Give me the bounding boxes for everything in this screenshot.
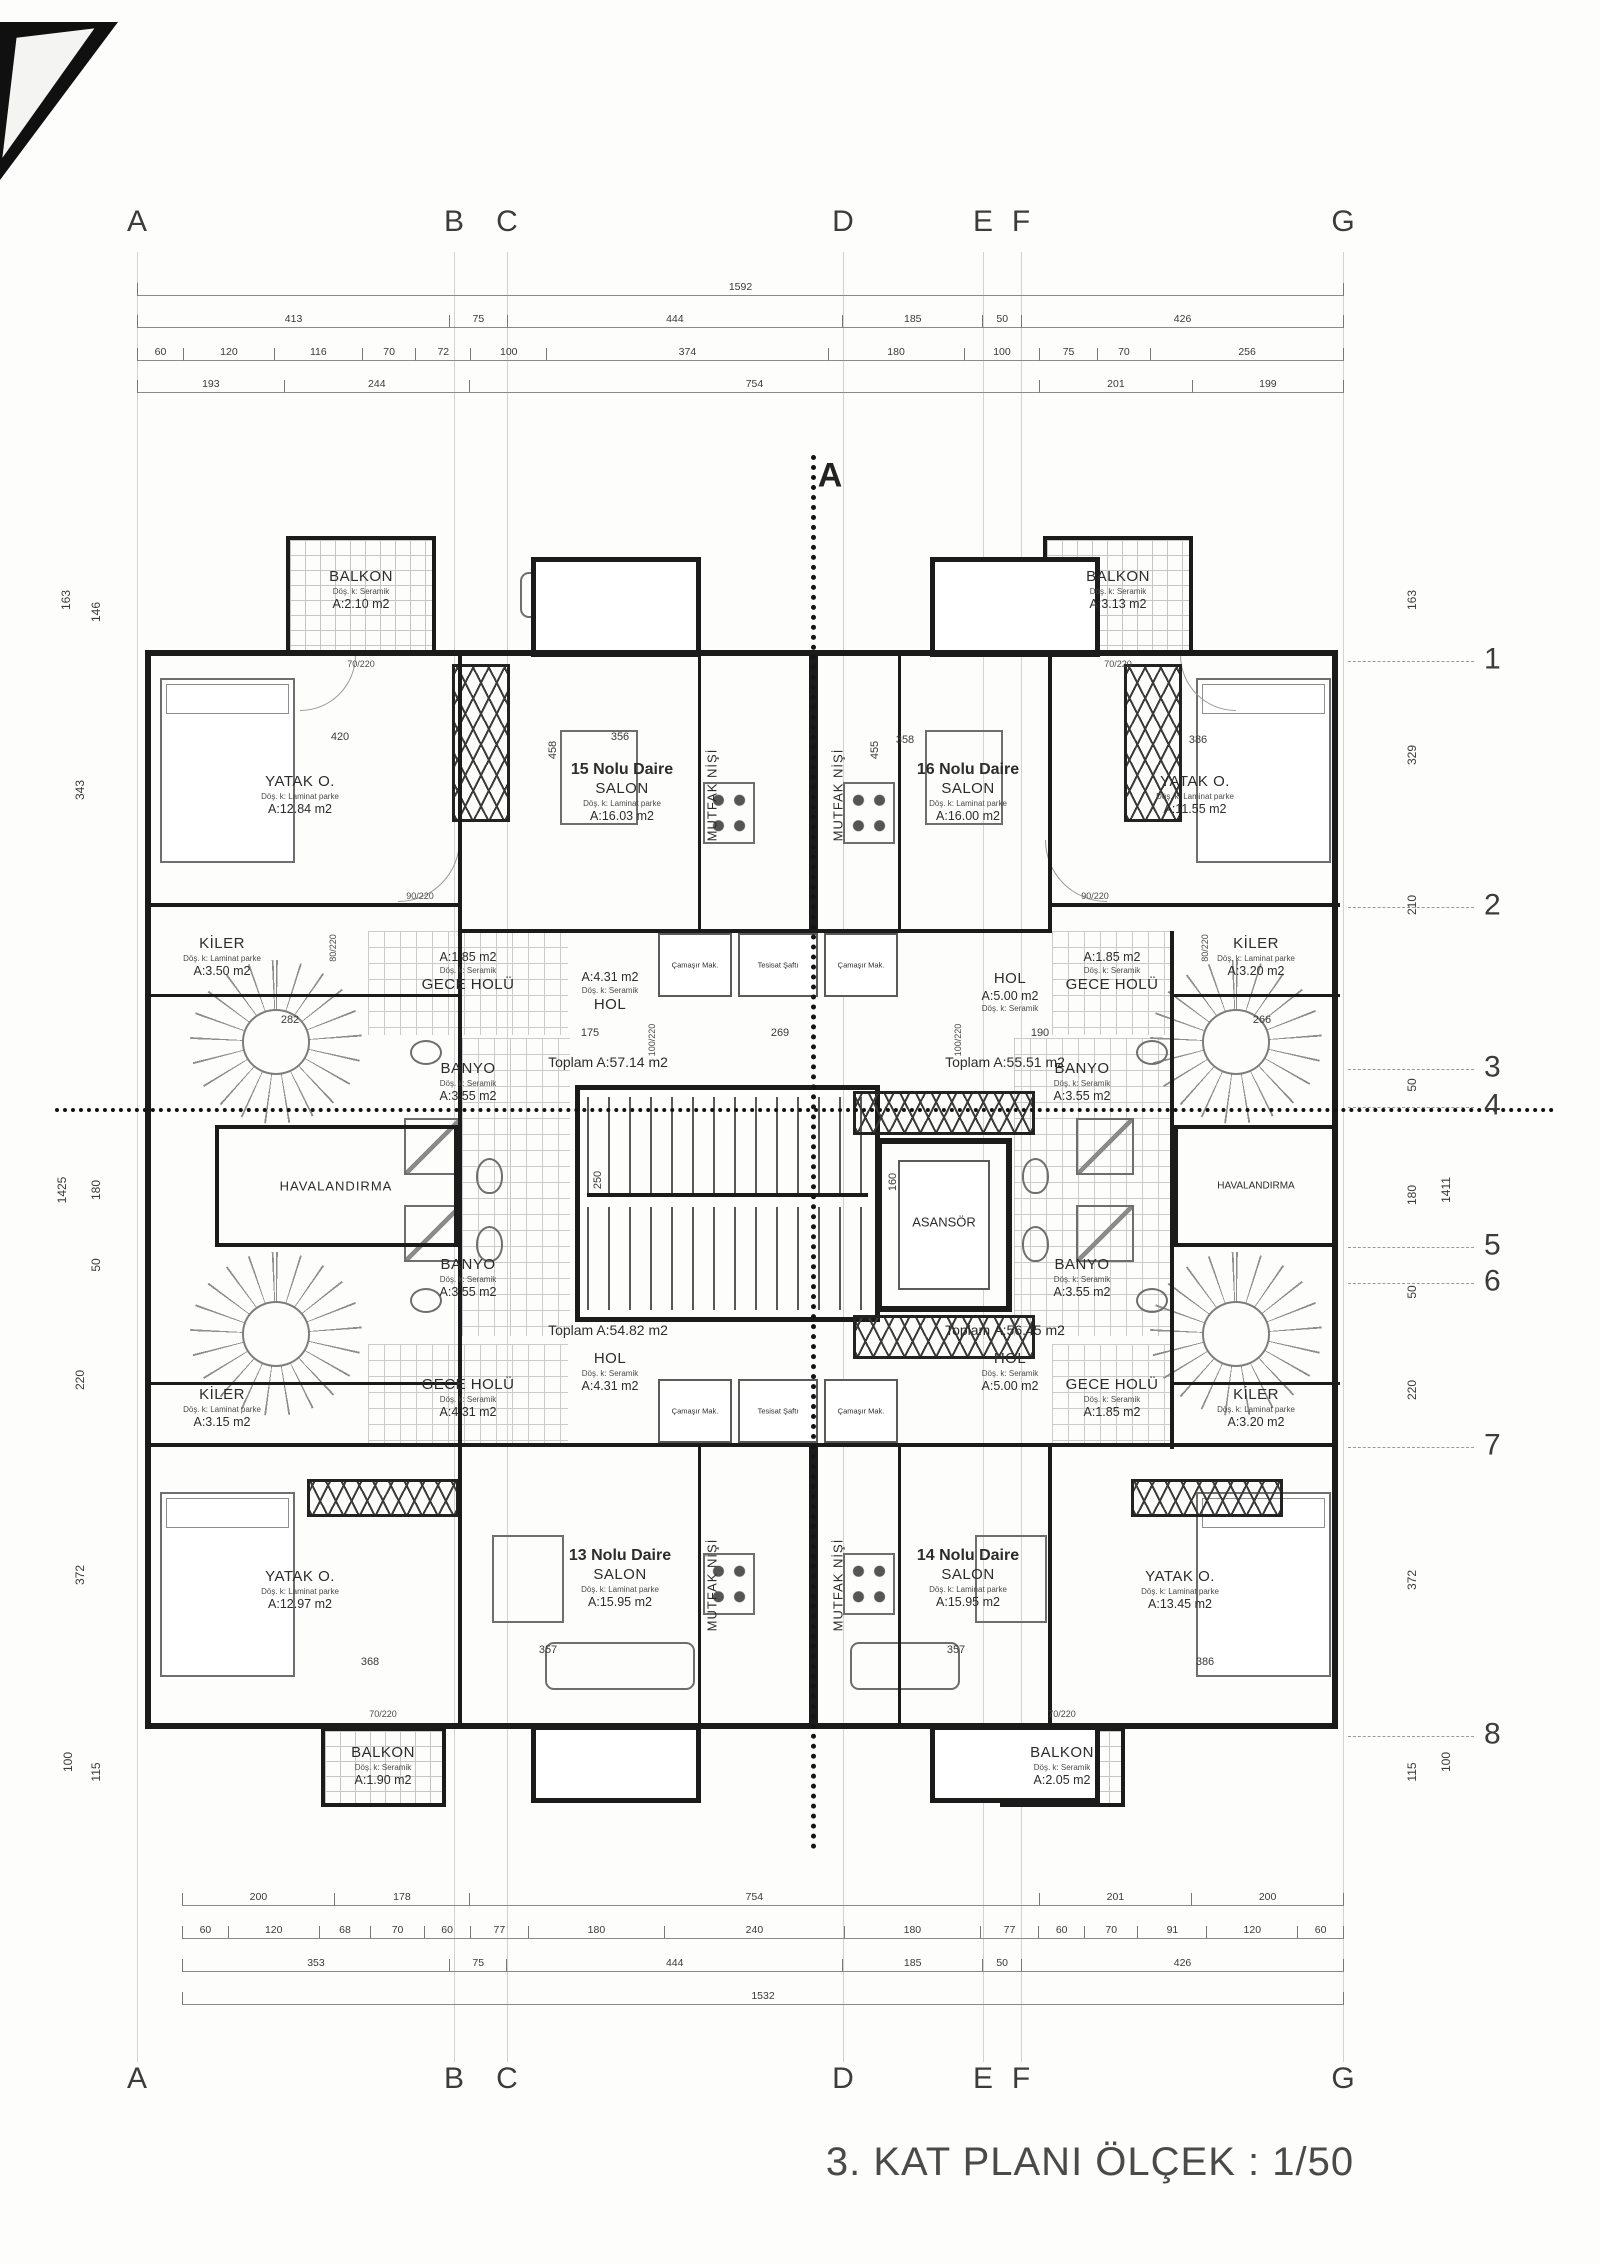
room-label-area: A:5.00 m2 <box>982 989 1039 1005</box>
dim-value: 185 <box>904 1957 922 1969</box>
label-mutfak-nisi-14: MUTFAK NİŞİ <box>831 1539 846 1632</box>
label-mutfak-nisi-16: MUTFAK NİŞİ <box>831 749 846 842</box>
dim-value: 426 <box>1174 1957 1192 1969</box>
grid-letter-top-e: E <box>973 205 993 239</box>
dim-segment: 60 <box>425 1926 471 1939</box>
room-label-unit: 16 Nolu Daire <box>917 760 1019 780</box>
room-label-area: A:12.97 m2 <box>261 1597 339 1613</box>
inner-dim-282: 282 <box>281 1014 299 1026</box>
grid-letter-top-f: F <box>1012 205 1030 239</box>
dim-right-115: 115 <box>1405 1762 1419 1781</box>
label-camasir-bottom-right: Çamaşır Mak. <box>838 1407 885 1416</box>
room-yatak-15: YATAK O.Döş. k: Laminat parkeA:12.84 m2 <box>261 773 339 817</box>
dim-segment: 60 <box>138 348 184 361</box>
room-yatak-14: YATAK O.Döş. k: Laminat parkeA:13.45 m2 <box>1141 1568 1219 1612</box>
dim-left-1425: 1425 <box>55 1177 69 1204</box>
row-number-7: 7 <box>1484 1428 1501 1462</box>
dim-left-343: 343 <box>73 780 87 800</box>
grid-letter-top-d: D <box>832 205 854 239</box>
wall-kiler15 <box>145 994 460 997</box>
room-label-area: A:4.31 m2 <box>582 1379 639 1395</box>
room-label-name: YATAK O. <box>1156 773 1234 792</box>
stairwell <box>575 1085 880 1322</box>
room-kiler-15: KİLERDöş. k: Laminat parkeA:3.50 m2 <box>183 935 261 979</box>
room-label-note: Döş. k: Seramik <box>1054 1275 1111 1285</box>
dim-right-372: 372 <box>1405 1570 1419 1590</box>
dim-value: 200 <box>250 1891 268 1903</box>
bay-window-salon-16 <box>930 557 1100 657</box>
dim-left-220: 220 <box>73 1370 87 1390</box>
inner-dim-455: 455 <box>869 741 881 759</box>
room-label-name: YATAK O. <box>1141 1568 1219 1587</box>
wall-yatak13-salon13 <box>458 1447 462 1729</box>
dim-value: 60 <box>441 1924 453 1936</box>
dim-value: 60 <box>1315 1924 1327 1936</box>
dim-segment: 426 <box>1022 315 1344 328</box>
room-label-name: SALON <box>917 1566 1019 1585</box>
row-number-3: 3 <box>1484 1050 1501 1084</box>
room-label-area: A:3.20 m2 <box>1217 1415 1295 1431</box>
dim-segment: 444 <box>508 315 843 328</box>
grid-letter-bottom-e: E <box>973 2062 993 2096</box>
dim-value: 60 <box>200 1924 212 1936</box>
room-label-note: Döş. k: Seramik <box>1030 1763 1094 1773</box>
dim-segment: 77 <box>471 1926 530 1939</box>
shaft-hatch-above-elevator <box>853 1091 1035 1135</box>
room-label-note: Döş. k: Seramik <box>440 1275 497 1285</box>
dim-segment: 200 <box>1192 1893 1344 1906</box>
room-label-note: Döş. k: Laminat parke <box>1141 1587 1219 1597</box>
room-label-area: A:16.03 m2 <box>571 809 673 825</box>
room-label-area: A:3.50 m2 <box>183 964 261 980</box>
room-label-name: HOL <box>582 1350 639 1369</box>
section-line-vertical <box>811 455 816 1850</box>
room-kiler-14: KİLERDöş. k: Laminat parkeA:3.20 m2 <box>1217 1386 1295 1430</box>
room-salon-16: 16 Nolu DaireSALONDöş. k: Laminat parkeA… <box>917 760 1019 824</box>
room-banyo-15: BANYODöş. k: SeramikA:3.55 m2 <box>440 1060 497 1104</box>
dim-segment: 60 <box>1298 1926 1344 1939</box>
dim-segment: 68 <box>320 1926 372 1939</box>
dim-value: 60 <box>155 346 167 358</box>
dim-value: 444 <box>666 313 684 325</box>
dim-value: 201 <box>1107 378 1125 390</box>
room-label-area: A:3.15 m2 <box>183 1415 261 1431</box>
dim-value: 180 <box>904 1924 922 1936</box>
inner-dim-420: 420 <box>331 731 349 743</box>
room-balkon-top-left: BALKONDöş. k: SeramikA:2.10 m2 <box>329 568 393 612</box>
dim-value: 77 <box>1004 1924 1016 1936</box>
dim-left-100: 100 <box>61 1752 75 1772</box>
grid-letter-bottom-c: C <box>496 2062 518 2096</box>
dim-right-100: 100 <box>1439 1752 1453 1772</box>
room-label-area: A:15.95 m2 <box>569 1595 671 1611</box>
label-mutfak-nisi-15: MUTFAK NİŞİ <box>705 749 720 842</box>
room-label-note: Döş. k: Seramik <box>329 587 393 597</box>
wall-kitchen16-right <box>898 650 901 933</box>
room-kiler-13: KİLERDöş. k: Laminat parkeA:3.15 m2 <box>183 1386 261 1430</box>
dim-left-372: 372 <box>73 1565 87 1585</box>
dim-right-329: 329 <box>1405 745 1419 765</box>
dim-segment: 185 <box>843 1959 983 1972</box>
dim-value: 100 <box>500 346 518 358</box>
dim-segment: 193 <box>138 380 285 393</box>
wall-core-left <box>458 931 462 1449</box>
inner-dim-175: 175 <box>581 1027 599 1039</box>
dim-value: 754 <box>746 378 764 390</box>
label-toplam-13: Toplam A:54.82 m2 <box>548 1322 668 1338</box>
room-label-name: HOL <box>982 1350 1039 1369</box>
dim-segment: 754 <box>470 380 1040 393</box>
dim-chain-bottom-rooms: 200178754201200 <box>182 1893 1344 1906</box>
door-size-label: 100/220 <box>953 1024 963 1057</box>
dim-chain-bottom-detail: 60120687060771802401807760709112060 <box>182 1926 1344 1939</box>
plan-title: 3. KAT PLANI ÖLÇEK : 1/50 <box>800 2140 1380 2185</box>
dim-value: 50 <box>996 1957 1008 1969</box>
room-hol-13: HOLDöş. k: SeramikA:4.31 m2 <box>582 1350 639 1394</box>
bay-window-salon-15 <box>531 557 701 657</box>
dim-segment: 374 <box>547 348 828 361</box>
wall-kiler14 <box>1174 1382 1340 1385</box>
dim-segment: 60 <box>1039 1926 1085 1939</box>
dim-segment: 72 <box>416 348 471 361</box>
shaft-hatch-bottom-left <box>307 1479 459 1517</box>
label-asansor: ASANSÖR <box>912 1215 976 1230</box>
dim-value: 70 <box>383 346 395 358</box>
room-label-name: GECE HOLÜ <box>1066 1376 1159 1395</box>
dim-segment: 244 <box>285 380 470 393</box>
room-label-note: Döş. k: Laminat parke <box>917 1585 1019 1595</box>
grid-letter-top-b: B <box>444 205 464 239</box>
room-balkon-bottom-right: BALKONDöş. k: SeramikA:2.05 m2 <box>1030 1744 1094 1788</box>
room-label-note: Döş. k: Laminat parke <box>1217 954 1295 964</box>
row-number-1: 1 <box>1484 642 1501 676</box>
dim-right-210: 210 <box>1405 895 1419 915</box>
dim-segment: 201 <box>1040 380 1193 393</box>
room-salon-13: 13 Nolu DaireSALONDöş. k: Laminat parkeA… <box>569 1546 671 1610</box>
dim-value: 426 <box>1174 313 1192 325</box>
dim-segment: 426 <box>1022 1959 1344 1972</box>
room-label-name: GECE HOLÜ <box>1066 975 1159 994</box>
dim-segment: 754 <box>470 1893 1040 1906</box>
dim-segment: 60 <box>183 1926 229 1939</box>
wall-bottom-band-top <box>145 1443 1338 1447</box>
inner-dim-386-bottom: 386 <box>1196 1656 1214 1668</box>
dim-value: 256 <box>1238 346 1256 358</box>
room-label-note: Döş. k: Laminat parke <box>183 954 261 964</box>
room-label-area: A:15.95 m2 <box>917 1595 1019 1611</box>
room-label-area: A:13.45 m2 <box>1141 1597 1219 1613</box>
inner-dim-386-top: 386 <box>1189 734 1207 746</box>
dim-value: 1592 <box>729 281 752 293</box>
inner-dim-358: 358 <box>896 734 914 746</box>
section-marker: A <box>818 457 843 496</box>
dim-segment: 120 <box>1207 1926 1298 1939</box>
floor-plan-sheet: A B C D E F G A B C D E F G 1 2 3 4 5 6 … <box>0 0 1600 2264</box>
dim-segment: 70 <box>1098 348 1151 361</box>
room-gece-holu-13: GECE HOLÜDöş. k: SeramikA:4.31 m2 <box>422 1376 515 1420</box>
dim-right-220: 220 <box>1405 1380 1419 1400</box>
dim-left-163: 163 <box>59 590 73 610</box>
dim-segment: 50 <box>983 315 1022 328</box>
bay-window-salon-13 <box>531 1725 701 1803</box>
dim-value: 100 <box>993 346 1011 358</box>
inner-dim-269: 269 <box>771 1027 789 1039</box>
room-label-area: A:3.55 m2 <box>440 1285 497 1301</box>
dim-segment: 256 <box>1151 348 1344 361</box>
grid-letter-top-g: G <box>1331 205 1354 239</box>
room-label-note: Döş. k: Seramik <box>1066 965 1159 975</box>
inner-dim-368: 368 <box>361 1656 379 1668</box>
row-leader-7 <box>1348 1447 1474 1448</box>
row-leader-5 <box>1348 1247 1474 1248</box>
inner-dim-160: 160 <box>887 1173 899 1191</box>
label-toplam-16: Toplam A:55.51 m2 <box>945 1054 1065 1070</box>
room-label-name: BANYO <box>1054 1256 1111 1275</box>
wall-salon16-yatak16 <box>1048 650 1052 933</box>
room-label-note: Döş. k: Seramik <box>422 965 515 975</box>
dim-segment: 1532 <box>183 1992 1344 2005</box>
row-leader-1 <box>1348 661 1474 662</box>
room-salon-15: 15 Nolu DaireSALONDöş. k: Laminat parkeA… <box>571 760 673 824</box>
room-label-name: SALON <box>569 1566 671 1585</box>
room-label-name: GECE HOLÜ <box>422 975 515 994</box>
grid-letter-bottom-d: D <box>832 2062 854 2096</box>
dim-segment: 120 <box>184 348 275 361</box>
dim-value: 120 <box>265 1924 283 1936</box>
dim-value: 70 <box>1105 1924 1117 1936</box>
room-label-unit: 14 Nolu Daire <box>917 1546 1019 1566</box>
grid-line-A <box>137 252 138 2062</box>
dim-value: 200 <box>1259 1891 1277 1903</box>
room-label-note: Döş. k: Laminat parke <box>261 792 339 802</box>
room-label-area: A:3.55 m2 <box>1054 1285 1111 1301</box>
room-label-name: BALKON <box>1086 568 1150 587</box>
dim-segment: 240 <box>665 1926 845 1939</box>
dim-left-50: 50 <box>89 1258 103 1271</box>
room-label-name: GECE HOLÜ <box>422 1376 515 1395</box>
wall-kitchen15-left <box>698 650 701 933</box>
wall-salon14-yatak14 <box>1048 1447 1052 1729</box>
room-balkon-top-right: BALKONDöş. k: SeramikA:3.13 m2 <box>1086 568 1150 612</box>
dim-segment: 444 <box>507 1959 843 1972</box>
grid-letter-bottom-f: F <box>1012 2062 1030 2096</box>
dim-value: 116 <box>310 346 327 358</box>
inner-dim-266: 266 <box>1253 1014 1271 1026</box>
dim-chain-top-detail: 6012011670721003741801007570256 <box>137 348 1344 361</box>
dim-value: 754 <box>746 1891 764 1903</box>
door-size-label: 80/220 <box>1200 934 1210 962</box>
dim-segment: 75 <box>450 315 508 328</box>
room-label-area: A:3.55 m2 <box>1054 1089 1111 1105</box>
dim-value: 50 <box>996 313 1008 325</box>
dim-segment: 180 <box>845 1926 981 1939</box>
room-label-area: A:4.31 m2 <box>582 970 639 986</box>
door-size-label: 80/220 <box>328 934 338 962</box>
wall-kitchen14-right <box>898 1447 901 1727</box>
wall-kiler16 <box>1174 994 1340 997</box>
dim-right-163: 163 <box>1405 590 1419 610</box>
room-yatak-13: YATAK O.Döş. k: Laminat parkeA:12.97 m2 <box>261 1568 339 1612</box>
label-toplam-15: Toplam A:57.14 m2 <box>548 1054 668 1070</box>
inner-dim-458: 458 <box>547 741 559 759</box>
room-label-name: BALKON <box>351 1744 415 1763</box>
room-label-note: Döş. k: Laminat parke <box>1217 1405 1295 1415</box>
label-toplam-14: Toplam A:56.45 m2 <box>945 1322 1065 1338</box>
dim-left-180: 180 <box>89 1180 103 1200</box>
wall-kiler13 <box>145 1382 460 1385</box>
room-label-note: Döş. k: Seramik <box>582 1369 639 1379</box>
room-gece-holu-16: A:1.85 m2Döş. k: SeramikGECE HOLÜ <box>1066 950 1159 994</box>
room-kiler-16: KİLERDöş. k: Laminat parkeA:3.20 m2 <box>1217 935 1295 979</box>
label-camasir-top-left: Çamaşır Mak. <box>672 961 719 970</box>
room-label-note: Döş. k: Laminat parke <box>917 799 1019 809</box>
room-label-name: SALON <box>917 780 1019 799</box>
row-leader-3 <box>1348 1069 1474 1070</box>
room-label-name: KİLER <box>1217 1386 1295 1405</box>
room-label-note: Döş. k: Seramik <box>351 1763 415 1773</box>
dim-segment: 120 <box>229 1926 320 1939</box>
door-size-label: 100/220 <box>647 1024 657 1057</box>
room-salon-14: 14 Nolu DaireSALONDöş. k: Laminat parkeA… <box>917 1546 1019 1610</box>
room-label-area: A:3.20 m2 <box>1217 964 1295 980</box>
room-label-area: A:12.84 m2 <box>261 802 339 818</box>
dim-value: 70 <box>1118 346 1130 358</box>
room-label-area: A:3.13 m2 <box>1086 597 1150 613</box>
dim-segment: 70 <box>1085 1926 1138 1939</box>
room-label-note: Döş. k: Laminat parke <box>261 1587 339 1597</box>
wall-kitchen13-left <box>698 1447 701 1727</box>
dim-value: 75 <box>1063 346 1075 358</box>
label-camasir-top-right: Çamaşır Mak. <box>838 961 885 970</box>
dim-segment: 180 <box>829 348 965 361</box>
dim-segment: 75 <box>1040 348 1097 361</box>
grid-letter-bottom-b: B <box>444 2062 464 2096</box>
room-label-note: Döş. k: Seramik <box>1086 587 1150 597</box>
dim-segment: 70 <box>363 348 416 361</box>
room-label-name: HOL <box>982 970 1039 989</box>
room-label-name: BALKON <box>329 568 393 587</box>
row-leader-6 <box>1348 1283 1474 1284</box>
shaft-hatch-bottom-right <box>1131 1479 1283 1517</box>
label-tesisat-bottom: Tesisat Şaftı <box>758 1407 799 1416</box>
room-label-name: BANYO <box>440 1060 497 1079</box>
dim-segment: 185 <box>843 315 983 328</box>
dim-segment: 178 <box>335 1893 470 1906</box>
room-label-area: A:1.90 m2 <box>351 1773 415 1789</box>
dim-value: 60 <box>1056 1924 1068 1936</box>
dim-value: 240 <box>746 1924 764 1936</box>
grid-letter-bottom-a: A <box>127 2062 147 2096</box>
room-hol-14: HOLDöş. k: SeramikA:5.00 m2 <box>982 1350 1039 1394</box>
dim-value: 374 <box>679 346 697 358</box>
room-label-name: YATAK O. <box>261 773 339 792</box>
room-label-area: A:1.85 m2 <box>1066 1405 1159 1421</box>
dim-value: 178 <box>393 1891 411 1903</box>
room-label-area: A:5.00 m2 <box>982 1379 1039 1395</box>
room-label-area: A:2.05 m2 <box>1030 1773 1094 1789</box>
dim-right-50a: 50 <box>1405 1078 1419 1091</box>
room-label-name: BANYO <box>440 1256 497 1275</box>
door-size-label: 90/220 <box>406 891 434 901</box>
wall-core-right <box>1170 931 1174 1449</box>
label-tesisat-top: Tesisat Şaftı <box>758 961 799 970</box>
room-label-note: Döş. k: Seramik <box>422 1395 515 1405</box>
room-label-note: Döş. k: Seramik <box>982 1369 1039 1379</box>
label-mutfak-nisi-13: MUTFAK NİŞİ <box>705 1539 720 1632</box>
grid-letter-top-a: A <box>127 205 147 239</box>
room-banyo-14: BANYODöş. k: SeramikA:3.55 m2 <box>1054 1256 1111 1300</box>
dim-segment: 100 <box>471 348 547 361</box>
room-balkon-bottom-left: BALKONDöş. k: SeramikA:1.90 m2 <box>351 1744 415 1788</box>
room-label-area: A:16.00 m2 <box>917 809 1019 825</box>
dim-left-115: 115 <box>89 1762 103 1781</box>
dim-value: 91 <box>1167 1924 1179 1936</box>
dim-segment: 201 <box>1040 1893 1193 1906</box>
row-number-6: 6 <box>1484 1264 1501 1298</box>
dim-segment: 413 <box>138 315 450 328</box>
inner-dim-356: 356 <box>611 731 629 743</box>
room-label-note: Döş. k: Seramik <box>440 1079 497 1089</box>
room-label-area: A:11.55 m2 <box>1156 802 1234 818</box>
dim-value: 75 <box>472 1957 484 1969</box>
dim-value: 244 <box>368 378 386 390</box>
dim-chain-top-rooms: 193244754201199 <box>137 380 1344 393</box>
dim-value: 185 <box>904 313 922 325</box>
dim-value: 120 <box>1244 1924 1262 1936</box>
room-gece-holu-14: GECE HOLÜDöş. k: SeramikA:1.85 m2 <box>1066 1376 1159 1420</box>
door-size-label: 70/220 <box>347 659 375 669</box>
dim-value: 70 <box>392 1924 404 1936</box>
dim-value: 199 <box>1259 378 1277 390</box>
dim-value: 180 <box>588 1924 606 1936</box>
door-size-label: 70/220 <box>369 1709 397 1719</box>
dim-value: 72 <box>437 346 449 358</box>
row-number-8: 8 <box>1484 1717 1501 1751</box>
dim-chain-bottom-axis: 3537544418550426 <box>182 1959 1344 1972</box>
room-label-note: Döş. k: Laminat parke <box>1156 792 1234 802</box>
room-label-note: Döş. k: Laminat parke <box>571 799 673 809</box>
room-label-unit: 15 Nolu Daire <box>571 760 673 780</box>
door-size-label: 70/220 <box>1048 1709 1076 1719</box>
grid-line-G <box>1343 252 1344 2062</box>
dim-value: 120 <box>220 346 238 358</box>
room-label-area: A:2.10 m2 <box>329 597 393 613</box>
room-label-area: A:1.85 m2 <box>422 950 515 966</box>
dim-segment: 353 <box>183 1959 450 1972</box>
label-havalandirma-right: HAVALANDIRMA <box>1217 1181 1294 1192</box>
label-havalandirma-left: HAVALANDIRMA <box>280 1179 393 1194</box>
dim-segment: 77 <box>981 1926 1040 1939</box>
dim-segment: 1592 <box>138 283 1344 296</box>
dim-segment: 116 <box>275 348 363 361</box>
dim-value: 201 <box>1107 1891 1125 1903</box>
room-label-name: KİLER <box>183 935 261 954</box>
room-label-name: KİLER <box>183 1386 261 1405</box>
dim-segment: 50 <box>983 1959 1022 1972</box>
dim-value: 68 <box>339 1924 351 1936</box>
wall-salon-band-bottom <box>458 929 1052 933</box>
room-label-note: Döş. k: Seramik <box>982 1004 1039 1014</box>
room-label-note: Döş. k: Laminat parke <box>183 1405 261 1415</box>
room-label-name: SALON <box>571 780 673 799</box>
dim-segment: 199 <box>1193 380 1344 393</box>
dim-segment: 75 <box>450 1959 508 1972</box>
door-size-label: 70/220 <box>1104 659 1132 669</box>
room-label-note: Döş. k: Seramik <box>582 985 639 995</box>
dim-value: 193 <box>202 378 220 390</box>
label-camasir-bottom-left: Çamaşır Mak. <box>672 1407 719 1416</box>
dim-left-146: 146 <box>89 602 103 622</box>
